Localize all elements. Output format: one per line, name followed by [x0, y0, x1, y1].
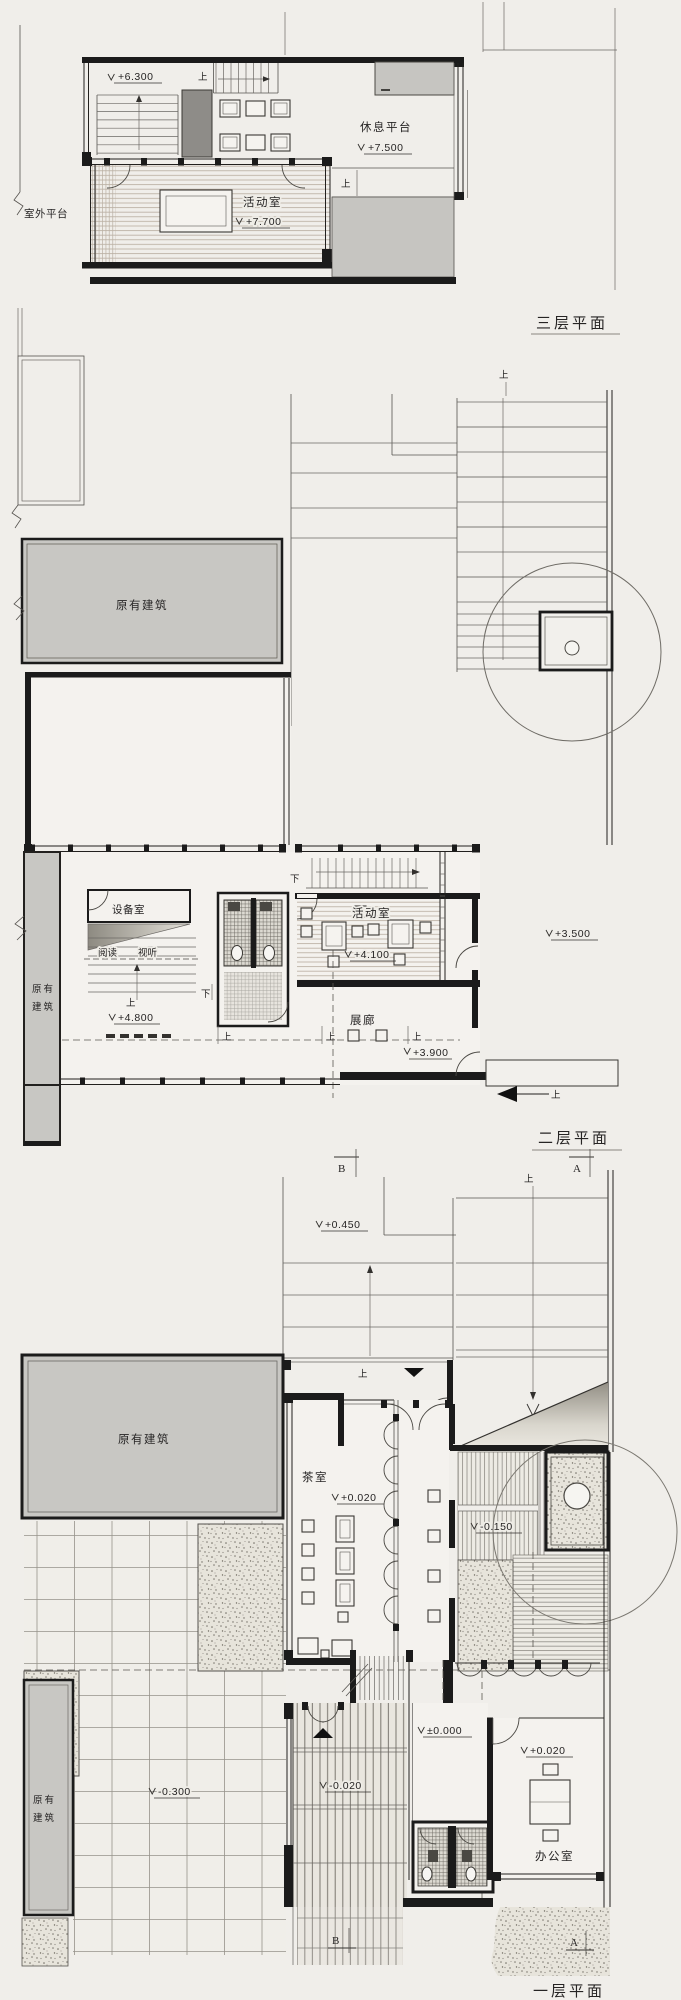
activity-room-3f: 活动室 +7.700	[82, 157, 332, 262]
activity-room-2f-label: 活动室	[352, 906, 391, 920]
skylight-box	[540, 612, 612, 670]
entry-porch	[486, 1060, 618, 1086]
tea-room-label: 茶室	[302, 1470, 328, 1484]
top-wall-2f	[24, 844, 480, 853]
floor1-title: 一层平面	[533, 1983, 605, 2000]
stair-arrow	[263, 76, 270, 82]
floor2-title: 二层平面	[538, 1130, 610, 1147]
stair-lower	[97, 95, 178, 155]
terrace-steps-left	[291, 394, 457, 726]
floor3-plan: 室外平台 +6.300 上	[14, 2, 620, 334]
roof-terrace-room	[25, 672, 291, 845]
deck-court: -0.150	[458, 1440, 677, 1671]
existing-side-label-2: 建筑	[32, 1001, 55, 1013]
level-3900: +3.900	[413, 1047, 448, 1059]
section-b-bottom-label: B	[332, 1935, 339, 1947]
level-0450: +0.450	[325, 1219, 360, 1231]
existing-building-top-label: 原有建筑	[118, 1432, 170, 1446]
planting-bed	[22, 1918, 68, 1966]
roof-gray-area	[332, 197, 454, 277]
up-threshold-2: 上	[326, 1032, 336, 1043]
floor3-title: 三层平面	[536, 315, 608, 332]
existing-side-label-1: 原有	[32, 983, 55, 995]
reading-label: 阅读	[98, 947, 118, 959]
table	[160, 190, 232, 232]
up-steps-label: 上	[126, 998, 136, 1009]
sloped-roof	[450, 1382, 608, 1451]
existing-strip-left: 原有 建筑	[15, 852, 60, 1146]
floor2-plan: 原有建筑 上	[12, 308, 661, 1150]
level-7500: +7.500	[368, 142, 403, 154]
section-marker-b-top: B	[334, 1149, 359, 1177]
level-m0300: -0.300	[158, 1786, 191, 1798]
level-deck: -0.150	[480, 1521, 513, 1533]
up-grid-label: 上	[524, 1174, 534, 1185]
audio-visual-label: 视听	[138, 947, 158, 959]
level-4100: +4.100	[354, 949, 389, 961]
rest-platform-label: 休息平台	[360, 120, 412, 134]
level-tea: +0.020	[341, 1492, 376, 1504]
down-toilet-label: 下	[201, 989, 211, 1000]
level-3500: +3.500	[555, 928, 590, 940]
level-6300: +6.300	[118, 71, 153, 83]
entrance-corridor: -0.020	[284, 1702, 413, 1907]
existing-left-label-1: 原有	[33, 1794, 56, 1806]
section-marker-a-top: A	[569, 1149, 594, 1177]
section-b-label: B	[338, 1163, 345, 1175]
up-landing-label: 上	[358, 1369, 368, 1380]
outdoor-steps-below	[293, 1907, 403, 1965]
skylight-column	[565, 641, 579, 655]
activity-room-label: 活动室	[243, 195, 282, 209]
section-a-label: A	[573, 1163, 581, 1175]
toilet-block-1f	[413, 1822, 493, 1892]
planting-bed	[198, 1524, 283, 1671]
floor1-plan: B A 上 +0.450	[22, 1149, 677, 2000]
existing-building-label: 原有建筑	[116, 598, 168, 612]
wc-fixture	[466, 1867, 476, 1881]
entry-arrow	[497, 1086, 517, 1102]
ground-texture	[491, 1907, 610, 1976]
break-mark	[14, 192, 23, 215]
existing-strip-left-1f: 原有 建筑	[24, 1680, 73, 1915]
up-label: 上	[499, 370, 509, 381]
up-terrace-label: 上	[341, 179, 351, 190]
office-room: +0.020 办公室	[487, 1718, 604, 1881]
up-threshold-3: 上	[412, 1032, 422, 1043]
office-label: 办公室	[535, 1849, 574, 1863]
floor-plans-svg: 室外平台 +6.300 上	[0, 0, 681, 2000]
wc-fixture	[422, 1867, 432, 1881]
down-triangle	[404, 1368, 424, 1377]
up-threshold-1: 上	[222, 1032, 232, 1043]
existing-left-label-2: 建筑	[33, 1812, 56, 1824]
equipment-room-label: 设备室	[112, 903, 145, 916]
tea-room: 茶室 +0.020	[284, 1393, 455, 1662]
wc-fixture	[232, 946, 243, 961]
existing-building-block-1f: 原有建筑	[22, 1355, 283, 1518]
wc-fixture	[264, 946, 275, 961]
outdoor-platform-label: 室外平台	[24, 207, 68, 220]
level-7700: +7.700	[246, 216, 281, 228]
pond-stone	[564, 1483, 590, 1509]
equipment-room: 设备室	[88, 890, 190, 922]
level-office: +0.020	[530, 1745, 565, 1757]
up-entry-label: 上	[551, 1090, 561, 1101]
scanned-plan-sheet: 室外平台 +6.300 上	[0, 0, 681, 2000]
gallery-label: 展廊	[350, 1013, 376, 1027]
section-a-bottom-label: A	[570, 1937, 578, 1949]
down-label: 下	[290, 874, 300, 885]
stair-arrow-up	[136, 95, 142, 102]
level-4800: +4.800	[118, 1012, 153, 1024]
level-corridor: -0.020	[329, 1780, 362, 1792]
up-label: 上	[198, 72, 208, 83]
interior-stair-1f	[286, 1650, 413, 1706]
stair-upper	[214, 63, 279, 93]
courtyard-paving-lower	[73, 1699, 286, 1955]
shaft-block	[182, 90, 212, 157]
lounge-furniture	[220, 100, 290, 151]
level-hall: ±0.000	[427, 1725, 462, 1737]
